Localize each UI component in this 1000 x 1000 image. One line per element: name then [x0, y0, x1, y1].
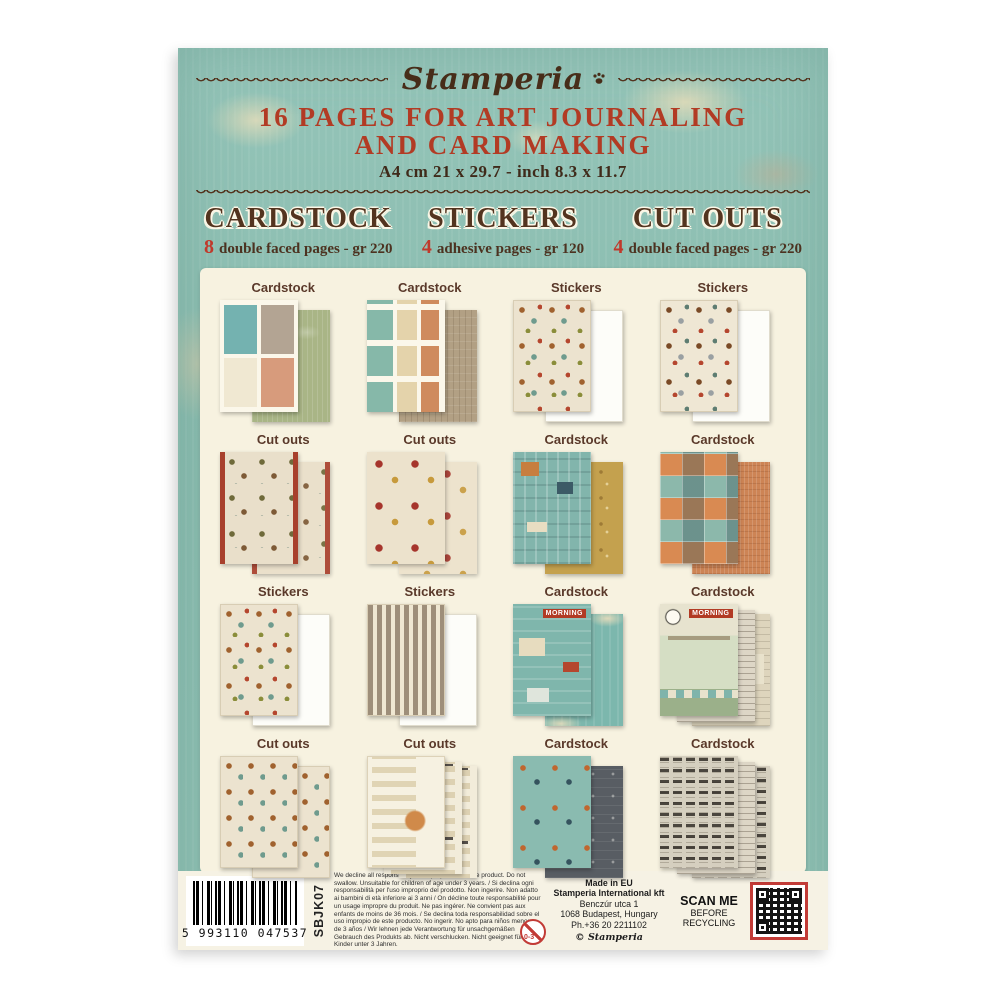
thumbnail-art-text: MORNING — [689, 609, 732, 618]
spec-heading: CUT OUTS — [614, 203, 802, 235]
page-thumbnail-front — [660, 452, 738, 564]
grid-cell: Cut outs — [210, 730, 357, 882]
page-thumbnail-front — [220, 604, 298, 716]
thumbnail-label: Cardstock — [503, 584, 650, 599]
grid-cell: Stickers — [503, 274, 650, 426]
thumbnail-label: Cardstock — [503, 736, 650, 751]
page-thumbnail-front — [220, 452, 298, 564]
grid-cell: Cardstock — [210, 274, 357, 426]
thumbnail-label: Stickers — [503, 280, 650, 295]
package-panel: Stamperia 16 PAGES FOR ART JOURNALING AN… — [178, 48, 828, 950]
wave-divider — [196, 188, 810, 195]
thumbnail-label: Cardstock — [357, 280, 504, 295]
grid-cell: Cut outs — [357, 730, 504, 882]
grid-cell: Cardstock — [503, 426, 650, 578]
grid-cell: Stickers — [357, 578, 504, 730]
thumbnail-label: Cut outs — [357, 736, 504, 751]
thumbnail-stack — [210, 602, 357, 730]
spec-heading: CARDSTOCK — [204, 203, 392, 235]
product-code: SBJK07 — [312, 884, 326, 937]
scan-before-text: BEFORE — [676, 908, 742, 918]
thumbnail-stack — [503, 298, 650, 426]
phone-number: Ph.+36 20 2211102 — [550, 920, 668, 931]
scan-me-block: SCAN ME BEFORE RECYCLING — [676, 894, 742, 928]
made-in-text: Made in EU — [550, 878, 668, 889]
barcode: 5 993110 047537 — [186, 876, 304, 946]
page-thumbnail-front — [367, 452, 445, 564]
age-warning-label: 0-3 — [524, 934, 534, 941]
qr-finder-icon — [789, 888, 802, 901]
thumbnail-label: Cardstock — [650, 736, 797, 751]
grid-cell: Cardstock — [503, 730, 650, 882]
thumbnail-stack — [210, 450, 357, 578]
thumbnail-label: Stickers — [357, 584, 504, 599]
copyright-brand: Stamperia — [588, 932, 643, 943]
page-thumbnail-front — [220, 756, 298, 868]
disclaimer-text: We decline all responsibility for improp… — [334, 872, 542, 949]
company-name: Stamperia International kft — [550, 888, 668, 899]
spec-column-stickers: STICKERS 4adhesive pages - gr 120 — [422, 203, 584, 259]
spec-subline: 4double faced pages - gr 220 — [614, 236, 802, 259]
thumbnail-label: Cardstock — [210, 280, 357, 295]
thumbnail-stack — [210, 754, 357, 882]
thumbnail-stack: MORNING — [650, 602, 797, 730]
thumbnail-label: Stickers — [210, 584, 357, 599]
barcode-digits: 5 993110 047537 — [182, 926, 308, 940]
scan-recycling-text: RECYCLING — [676, 918, 742, 928]
page-thumbnail-front: MORNING — [660, 604, 738, 716]
thumbnail-label: Cut outs — [210, 736, 357, 751]
page-thumbnail-front — [367, 300, 445, 412]
thumbnail-label: Cardstock — [503, 432, 650, 447]
thumbnail-stack — [357, 450, 504, 578]
manufacturer-block: Made in EU Stamperia International kft B… — [550, 878, 668, 944]
disclaimer-block: We decline all responsibility for improp… — [334, 872, 542, 949]
page-thumbnail-front — [513, 300, 591, 412]
spec-subline: 8double faced pages - gr 220 — [204, 236, 392, 259]
thumbnail-stack — [650, 298, 797, 426]
thumbnail-stack — [357, 298, 504, 426]
thumbnail-stack — [503, 754, 650, 882]
wave-divider — [196, 76, 388, 83]
page-thumbnail-front — [220, 300, 298, 412]
grid-cell: CardstockMORNING — [650, 578, 797, 730]
spec-description: double faced pages - gr 220 — [219, 241, 392, 257]
grid-cell: Cardstock — [357, 274, 504, 426]
thumbnail-grid: CardstockCardstockStickersStickersCut ou… — [200, 268, 806, 873]
page-thumbnail-front: MORNING — [513, 604, 591, 716]
grid-cell: Cut outs — [210, 426, 357, 578]
grid-cell: Stickers — [650, 274, 797, 426]
address-line1: Benczúr utca 1 — [550, 899, 668, 910]
page-thumbnail-front — [513, 452, 591, 564]
thumbnail-stack — [357, 602, 504, 730]
page-thumbnail-front — [660, 300, 738, 412]
page-thumbnail-front — [660, 756, 738, 868]
wave-divider — [618, 76, 810, 83]
thumbnail-label: Cut outs — [357, 432, 504, 447]
grid-cell: Stickers — [210, 578, 357, 730]
spec-description: adhesive pages - gr 120 — [437, 241, 584, 257]
grid-cell: Cardstock — [650, 730, 797, 882]
copyright-line: © Stamperia — [550, 933, 668, 944]
grid-cell: Cardstock — [650, 426, 797, 578]
address-line2: 1068 Budapest, Hungary — [550, 909, 668, 920]
thumbnail-stack — [357, 754, 504, 882]
age-warning-icon: 0-3 — [520, 919, 546, 945]
thumbnail-stack — [503, 450, 650, 578]
scan-me-text: SCAN ME — [676, 894, 742, 908]
spec-columns: CARDSTOCK 8double faced pages - gr 220 S… — [178, 195, 828, 259]
thumbnail-stack — [650, 754, 797, 882]
thumbnail-art-text: MORNING — [543, 609, 586, 618]
thumbnail-label: Cardstock — [650, 432, 797, 447]
grid-cell: CardstockMORNING — [503, 578, 650, 730]
qr-code — [750, 882, 808, 940]
spec-count: 8 — [204, 236, 214, 258]
spec-count: 4 — [614, 236, 624, 258]
spec-heading: STICKERS — [422, 203, 584, 235]
legal-strip: 5 993110 047537 SBJK07 We decline all re… — [178, 871, 828, 950]
qr-finder-icon — [756, 921, 769, 934]
spec-column-cutouts: CUT OUTS 4double faced pages - gr 220 — [614, 203, 802, 259]
thumbnail-label: Cut outs — [210, 432, 357, 447]
brand-logo: Stamperia — [388, 62, 592, 97]
headline-line1: 16 PAGES FOR ART JOURNALING — [178, 103, 828, 131]
barcode-bars — [193, 881, 297, 925]
spec-count: 4 — [422, 236, 432, 258]
thumbnail-stack — [210, 298, 357, 426]
thumbnail-label: Stickers — [650, 280, 797, 295]
page-thumbnail-front — [367, 756, 445, 868]
spec-column-cardstock: CARDSTOCK 8double faced pages - gr 220 — [204, 203, 392, 259]
thumbnail-label: Cardstock — [650, 584, 797, 599]
qr-finder-icon — [756, 888, 769, 901]
headline-line2: AND CARD MAKING — [178, 131, 828, 159]
thumbnail-stack — [650, 450, 797, 578]
grid-cell: Cut outs — [357, 426, 504, 578]
page-thumbnail-front — [367, 604, 445, 716]
brand-header: Stamperia — [178, 48, 828, 96]
spec-description: double faced pages - gr 220 — [629, 241, 802, 257]
sheet-size-text: A4 cm 21 x 29.7 - inch 8.3 x 11.7 — [178, 162, 828, 182]
product-back-cover: Stamperia 16 PAGES FOR ART JOURNALING AN… — [0, 0, 1000, 1000]
copyright-symbol: © — [575, 932, 585, 943]
spec-subline: 4adhesive pages - gr 120 — [422, 236, 584, 259]
thumbnail-stack: MORNING — [503, 602, 650, 730]
page-thumbnail-front — [513, 756, 591, 868]
paw-print-icon — [592, 72, 608, 86]
